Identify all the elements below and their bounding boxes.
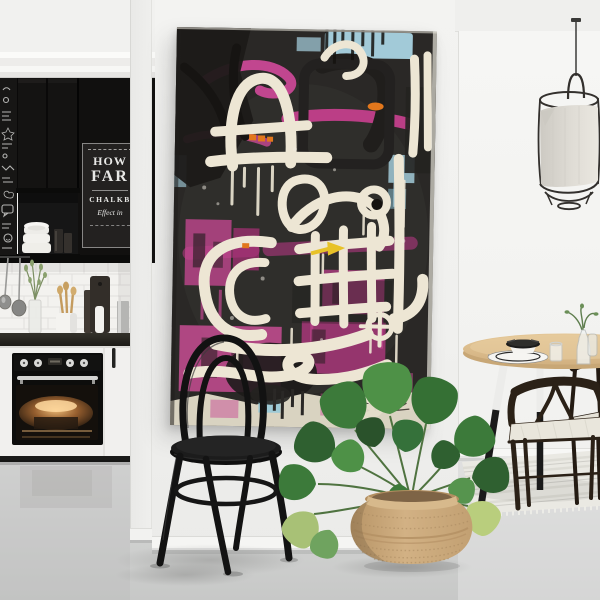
chalkboard-wall (0, 78, 17, 255)
chair-legs (160, 454, 289, 572)
chair-ring-stretcher (176, 478, 276, 504)
oven-handle (17, 376, 98, 380)
lamp-ceiling-cap (571, 18, 581, 22)
chair-seat (170, 436, 282, 466)
interior-scene: HOW FAR CHALKB Effect in (0, 0, 600, 600)
poster-word-effect: Effect in (86, 208, 134, 217)
chair-back-hoop (183, 338, 264, 444)
white-bottle (95, 306, 104, 333)
chair-back-inner-loop (200, 358, 249, 444)
drinking-glass (550, 342, 562, 361)
bentwood-chair (140, 328, 300, 576)
tableware (488, 304, 599, 365)
cabinet-handle (112, 348, 116, 368)
metal-canister (117, 301, 129, 333)
lamp-shade (540, 105, 598, 187)
woven-basket (351, 490, 473, 564)
monstera-plant (300, 392, 495, 572)
countertop (0, 333, 131, 346)
bowl-stack (22, 222, 51, 253)
poster-word-chalkboard: CHALKB (86, 195, 134, 204)
poster-divider (92, 187, 128, 191)
poster-word-how: HOW (86, 155, 134, 168)
poster-ornament (88, 149, 132, 152)
poster-word-far: FAR (86, 168, 134, 185)
pendant-lamp (535, 16, 600, 220)
poster-flourish (90, 221, 130, 226)
glass-bottle (588, 334, 597, 356)
open-shelf (16, 188, 80, 259)
